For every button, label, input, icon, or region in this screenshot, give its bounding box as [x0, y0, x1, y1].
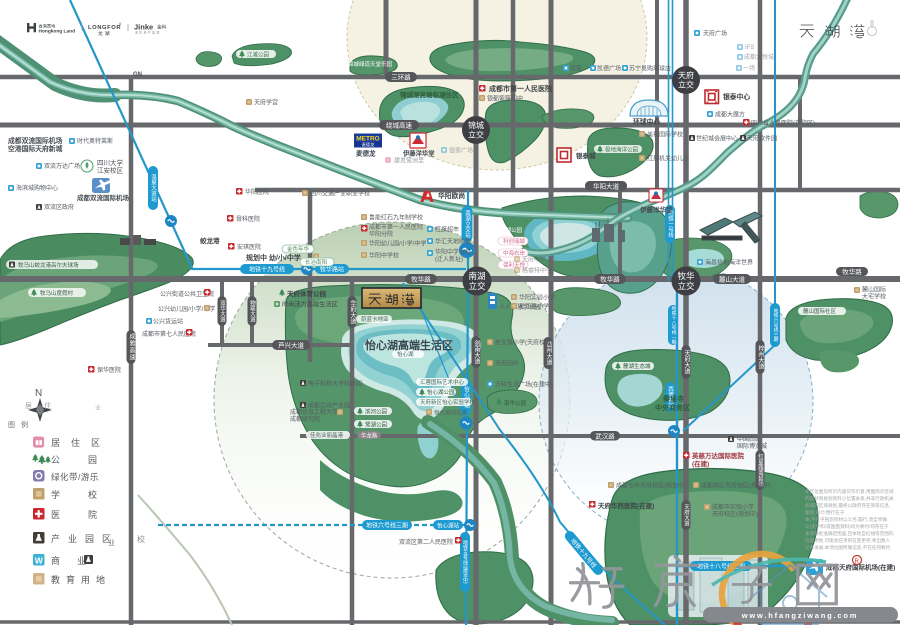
svg-text:权威的区域规划,最终以政府存在资等信息,: 权威的区域规划,最终以政府存在资等信息,: [805, 502, 890, 509]
svg-text:锦城湖高端临湖住区: 锦城湖高端临湖住区: [400, 90, 459, 99]
svg-text:四川交通产业职业学校: 四川交通产业职业学校: [310, 190, 370, 198]
svg-text:华阳分院: 华阳分院: [369, 230, 393, 238]
svg-text:极地海洋公园: 极地海洋公园: [605, 146, 639, 154]
svg-text:温泉大道站: 温泉大道站: [150, 173, 157, 203]
svg-text:IFS: IFS: [745, 45, 754, 51]
svg-text:蔚蓝卡地亚: 蔚蓝卡地亚: [361, 315, 389, 323]
svg-text:华阳医院: 华阳医院: [245, 188, 269, 196]
svg-text:红星机关幼儿园: 红星机关幼儿园: [647, 155, 689, 163]
svg-text:江安校区: 江安校区: [97, 166, 124, 175]
svg-text:GN: GN: [133, 72, 142, 78]
svg-text:金科地产集团: 金科地产集团: [135, 31, 161, 35]
svg-text:Hongkong Land: Hongkong Land: [39, 29, 76, 35]
svg-text:南湖公园: 南湖公园: [500, 226, 523, 234]
svg-text:恒大滨河左岸: 恒大滨河左岸: [434, 409, 468, 417]
svg-text:天府大道: 天府大道: [683, 350, 690, 375]
svg-text:牧马山度假村: 牧马山度假村: [40, 289, 74, 297]
svg-text:金科: 金科: [157, 24, 167, 31]
svg-text:R: R: [855, 559, 860, 565]
svg-text:立交: 立交: [468, 281, 486, 291]
svg-text:宜家: 宜家: [570, 65, 582, 73]
svg-text:剑南大道: 剑南大道: [473, 339, 480, 365]
svg-text:华阳欧尚: 华阳欧尚: [438, 191, 465, 200]
svg-text:立交: 立交: [468, 130, 484, 140]
svg-text:业: 业: [95, 404, 101, 412]
svg-text:麦德龙: 麦德龙: [356, 149, 376, 158]
svg-text:骨科医院: 骨科医院: [236, 215, 260, 223]
svg-text:双流区第二人民医院: 双流区第二人民医院: [399, 538, 453, 546]
svg-text:美视国际学校: 美视国际学校: [647, 131, 683, 139]
svg-text:医院: 医院: [51, 509, 125, 520]
svg-text:公园: 公园: [51, 455, 125, 465]
svg-text:长冶南阳: 长冶南阳: [305, 258, 327, 266]
svg-text:麓山国际: 麓山国际: [862, 286, 886, 294]
svg-text:居住区: 居住区: [51, 437, 111, 448]
svg-text:(迁入新址): (迁入新址): [435, 255, 463, 263]
svg-text:双流区政府: 双流区政府: [44, 203, 74, 211]
svg-text:双华大道: 双华大道: [219, 300, 226, 324]
svg-text:双流万达广场: 双流万达广场: [44, 162, 80, 170]
svg-text:牧华路: 牧华路: [842, 267, 862, 276]
svg-text:银泰城: 银泰城: [576, 151, 596, 160]
svg-text:蛟龙港: 蛟龙港: [200, 236, 220, 245]
svg-text:空港国际天府新城: 空港国际天府新城: [8, 144, 63, 153]
svg-text:佳兆业丽晶港: 佳兆业丽晶港: [310, 431, 344, 439]
svg-text:华阳实验小学: 华阳实验小学: [519, 294, 555, 302]
svg-text:金色年华: 金色年华: [287, 245, 310, 253]
svg-text:成都七中天府校区(规划中): 成都七中天府校区(规划中): [616, 482, 686, 490]
svg-text:银泰中心: 银泰中心: [723, 92, 750, 101]
svg-text:海滨城购物中心: 海滨城购物中心: [16, 184, 58, 192]
svg-text:本区位图及所示内容仅作示意,用图简示区域: 本区位图及所示内容仅作示意,用图简示区域: [805, 488, 894, 495]
svg-text:(在建): (在建): [692, 459, 709, 468]
svg-text:华汇天地购物: 华汇天地购物: [435, 238, 471, 246]
svg-text:公兴货运站: 公兴货运站: [153, 318, 183, 326]
svg-text:成都市实验小学: 成都市实验小学: [712, 503, 754, 511]
svg-text:规划中 幼/小/中学: 规划中 幼/小/中学: [246, 253, 301, 262]
svg-text:大宅学校: 大宅学校: [862, 293, 886, 301]
svg-text:时代奥特莱斯: 时代奥特莱斯: [77, 137, 113, 145]
svg-text:南湖立交站: 南湖立交站: [464, 209, 471, 239]
svg-text:麦德龙: 麦德龙: [362, 141, 375, 148]
svg-text:商业: 商业: [51, 555, 103, 566]
svg-text:的现状和规划资料小位置关系,并非行政机关: 的现状和规划资料小位置关系,并非行政机关: [805, 495, 894, 502]
svg-text:物联大道: 物联大道: [249, 299, 256, 324]
svg-text:信息用地,可能会在项目在变更存,奉出数人: 信息用地,可能会在项目在变更存,奉出数人: [805, 537, 891, 544]
svg-text:锦城: 锦城: [468, 120, 484, 130]
svg-text:龙湖: 龙湖: [98, 30, 112, 37]
svg-text:凯德广场: 凯德广场: [597, 65, 621, 73]
svg-text:地铁六号线三期: 地铁六号线三期: [366, 522, 408, 530]
svg-text:三环路: 三环路: [391, 73, 411, 82]
svg-text:立交: 立交: [678, 80, 694, 90]
svg-text:银都紫藤初中: 银都紫藤初中: [487, 95, 523, 103]
svg-text:www.hfangziwang.com: www.hfangziwang.com: [741, 611, 858, 620]
svg-text:义务发展,本项位图所做信息,不在任何要约: 义务发展,本项位图所做信息,不在任何要约: [805, 544, 891, 551]
svg-text:安琪医院: 安琪医院: [237, 243, 261, 251]
svg-text:W: W: [35, 556, 44, 566]
svg-text:麓山国际社区: 麓山国际社区: [803, 307, 837, 315]
svg-text:华龙路: 华龙路: [361, 432, 378, 440]
svg-text:地铁十八号线一期: 地铁十八号线一期: [671, 305, 676, 346]
svg-text:天府软件园: 天府软件园: [747, 135, 777, 143]
svg-text:华府大道: 华府大道: [349, 299, 356, 325]
svg-text:时尚活力高端生活区: 时尚活力高端生活区: [282, 301, 338, 309]
svg-text:伊藤洋华堂: 伊藤洋华堂: [639, 205, 673, 214]
svg-text:地铁十九号线: 地铁十九号线: [249, 266, 285, 274]
svg-text:成都信息工程大学: 成都信息工程大学: [290, 408, 338, 416]
svg-text:梓州大道: 梓州大道: [757, 344, 764, 370]
svg-text:认(文字和/或图面资料)均为要约/均存在于: 认(文字和/或图面资料)均为要约/均存在于: [805, 523, 889, 530]
svg-text:秦皇寺: 秦皇寺: [662, 394, 684, 403]
svg-text:LONGFOR: LONGFOR: [88, 25, 121, 31]
svg-text:武汉路: 武汉路: [595, 432, 615, 441]
svg-text:天府华西医院(在建): 天府华西医院(在建): [598, 501, 654, 510]
svg-text:业: 业: [108, 538, 115, 547]
svg-text:学校: 学校: [51, 489, 125, 500]
svg-text:®: ®: [119, 23, 122, 27]
svg-text:天府学宫: 天府学宫: [254, 99, 278, 107]
svg-text:怡心湖站: 怡心湖站: [437, 522, 460, 530]
svg-text:绿化带/游乐: 绿化带/游乐: [51, 472, 99, 482]
svg-text:芦兴大道: 芦兴大道: [278, 341, 305, 350]
svg-text:伊藤洋华堂: 伊藤洋华堂: [402, 149, 435, 158]
svg-text:怡心湖高端生活区: 怡心湖高端生活区: [365, 338, 453, 352]
svg-text:天府新区怡心实验学校: 天府新区怡心实验学校: [420, 398, 476, 406]
svg-text:成都大魔方: 成都大魔方: [715, 111, 745, 119]
svg-text:牧华路: 牧华路: [600, 275, 620, 284]
svg-text:牧华路站: 牧华路站: [320, 266, 344, 274]
svg-text:立交: 立交: [677, 281, 695, 291]
svg-text:格睿特中学: 格睿特中学: [522, 267, 552, 275]
svg-text:牧华: 牧华: [677, 271, 695, 281]
svg-text:麓山大道: 麓山大道: [719, 275, 746, 284]
svg-text:世纪城会展中心: 世纪城会展中心: [696, 135, 738, 143]
svg-text:图例: 图例: [8, 420, 34, 429]
svg-text:红星路南延线: 红星路南延线: [757, 452, 764, 487]
svg-text:国际博览城: 国际博览城: [737, 442, 767, 450]
svg-text:老文殊小学(天府校区): 老文殊小学(天府校区): [495, 339, 553, 347]
svg-text:南湖: 南湖: [468, 271, 485, 281]
svg-text:敬请,审计/预行在于:: 敬请,审计/预行在于:: [805, 509, 846, 516]
svg-text:鹭湖公园: 鹭湖公园: [365, 421, 388, 429]
svg-text:本,不在乎抱怨何材以义务,履行,须全项确: 本,不在乎抱怨何材以义务,履行,须全项确: [805, 516, 887, 523]
svg-text:华阳中学校: 华阳中学校: [369, 252, 399, 260]
svg-text:英慈万达国际医院: 英慈万达国际医院: [691, 451, 745, 460]
svg-text:成都大悦城: 成都大悦城: [744, 53, 774, 61]
svg-text:汇蓉国际艺术中心: 汇蓉国际艺术中心: [420, 378, 465, 386]
svg-text:海昌极地海洋世界: 海昌极地海洋世界: [705, 259, 753, 267]
svg-text:华阳幼儿园/小学/中学: 华阳幼儿园/小学/中学: [369, 240, 426, 248]
svg-text:天府校区(规划中): 天府校区(规划中): [712, 510, 758, 518]
svg-text:成都研究院: 成都研究院: [290, 415, 320, 423]
svg-text:红旗超市: 红旗超市: [435, 226, 459, 234]
svg-text:地铁六号线三期: 地铁六号线三期: [773, 307, 778, 343]
svg-text:天府: 天府: [678, 70, 694, 80]
svg-text:天府大道: 天府大道: [683, 504, 690, 527]
svg-text:科创瑞城: 科创瑞城: [503, 237, 526, 245]
svg-text:一场: 一场: [743, 64, 755, 72]
svg-text:香港置地: 香港置地: [39, 23, 57, 30]
svg-text:滨河公园: 滨河公园: [365, 408, 388, 416]
svg-text:鲁能红石九年制学校: 鲁能红石九年制学校: [369, 214, 423, 222]
svg-text:松江路小学: 松江路小学: [519, 303, 549, 311]
svg-text:中国西部: 中国西部: [737, 435, 761, 443]
svg-text:四川大学: 四川大学: [97, 158, 124, 167]
svg-text:天府中学: 天府中学: [522, 256, 546, 264]
svg-text:成都双流国际机场: 成都双流国际机场: [77, 193, 130, 202]
svg-text:建发鹭洲里: 建发鹭洲里: [394, 157, 424, 165]
svg-text:教育用地: 教育用地: [51, 574, 111, 585]
svg-text:南华公园: 南华公园: [504, 399, 527, 407]
svg-text:四川省人民医院(东院区): 四川省人民医院(东院区): [751, 119, 815, 127]
svg-text:天府体育公园: 天府体育公园: [287, 289, 327, 298]
svg-text:天府广场: 天府广场: [703, 30, 727, 38]
svg-text:华阳中学分校: 华阳中学分校: [435, 248, 471, 256]
svg-text:苏宁易购环球店: 苏宁易购环球店: [629, 65, 671, 73]
svg-text:环球中心: 环球中心: [633, 117, 660, 126]
svg-text:江滩公园: 江滩公园: [247, 51, 270, 59]
svg-text:牧华路: 牧华路: [411, 275, 431, 284]
svg-text:银泰广场: 银泰广场: [449, 147, 473, 155]
svg-text:万科生活广场(在建中): 万科生活广场(在建中): [495, 381, 553, 389]
svg-text:校: 校: [137, 534, 145, 544]
svg-text:怡心湖公园: 怡心湖公园: [427, 388, 455, 396]
svg-text:本项目批准确定围里,且本地自红线等范围的: 本项目批准确定围里,且本地自红线等范围的: [805, 530, 894, 537]
svg-text:锦城绿道天堂乐园: 锦城绿道天堂乐园: [348, 60, 393, 68]
svg-text:成都芯谷产业园: 成都芯谷产业园: [308, 402, 350, 410]
svg-text:成都双流国际机场: 成都双流国际机场: [8, 136, 63, 145]
svg-text:成都绵实天府校区(规划中): 成都绵实天府校区(规划中): [701, 482, 771, 490]
svg-text:保华医院: 保华医院: [97, 366, 121, 374]
svg-text:N: N: [35, 388, 42, 399]
svg-text:麓湖生态城: 麓湖生态城: [623, 362, 651, 370]
svg-text:华阳大道: 华阳大道: [593, 182, 620, 191]
svg-text:天府四中: 天府四中: [495, 360, 519, 368]
svg-text:地铁五号线(建设中): 地铁五号线(建设中): [462, 540, 468, 584]
svg-text:中海右岸: 中海右岸: [503, 249, 526, 257]
svg-text:成都市第一人民医院: 成都市第一人民医院: [369, 223, 423, 231]
svg-text:居住: 居住: [25, 401, 63, 410]
svg-text:电子科技大学科技园: 电子科技大学科技园: [308, 380, 362, 388]
svg-text:中央商务区: 中央商务区: [655, 403, 690, 412]
svg-text:成雅高速: 成雅高速: [128, 332, 135, 361]
svg-text:牧马山蛟龙港高尔夫球场: 牧马山蛟龙港高尔夫球场: [18, 261, 79, 269]
svg-text:成都市第一人民医院: 成都市第一人民医院: [489, 84, 552, 93]
svg-text:绕城高速: 绕城高速: [386, 121, 413, 130]
